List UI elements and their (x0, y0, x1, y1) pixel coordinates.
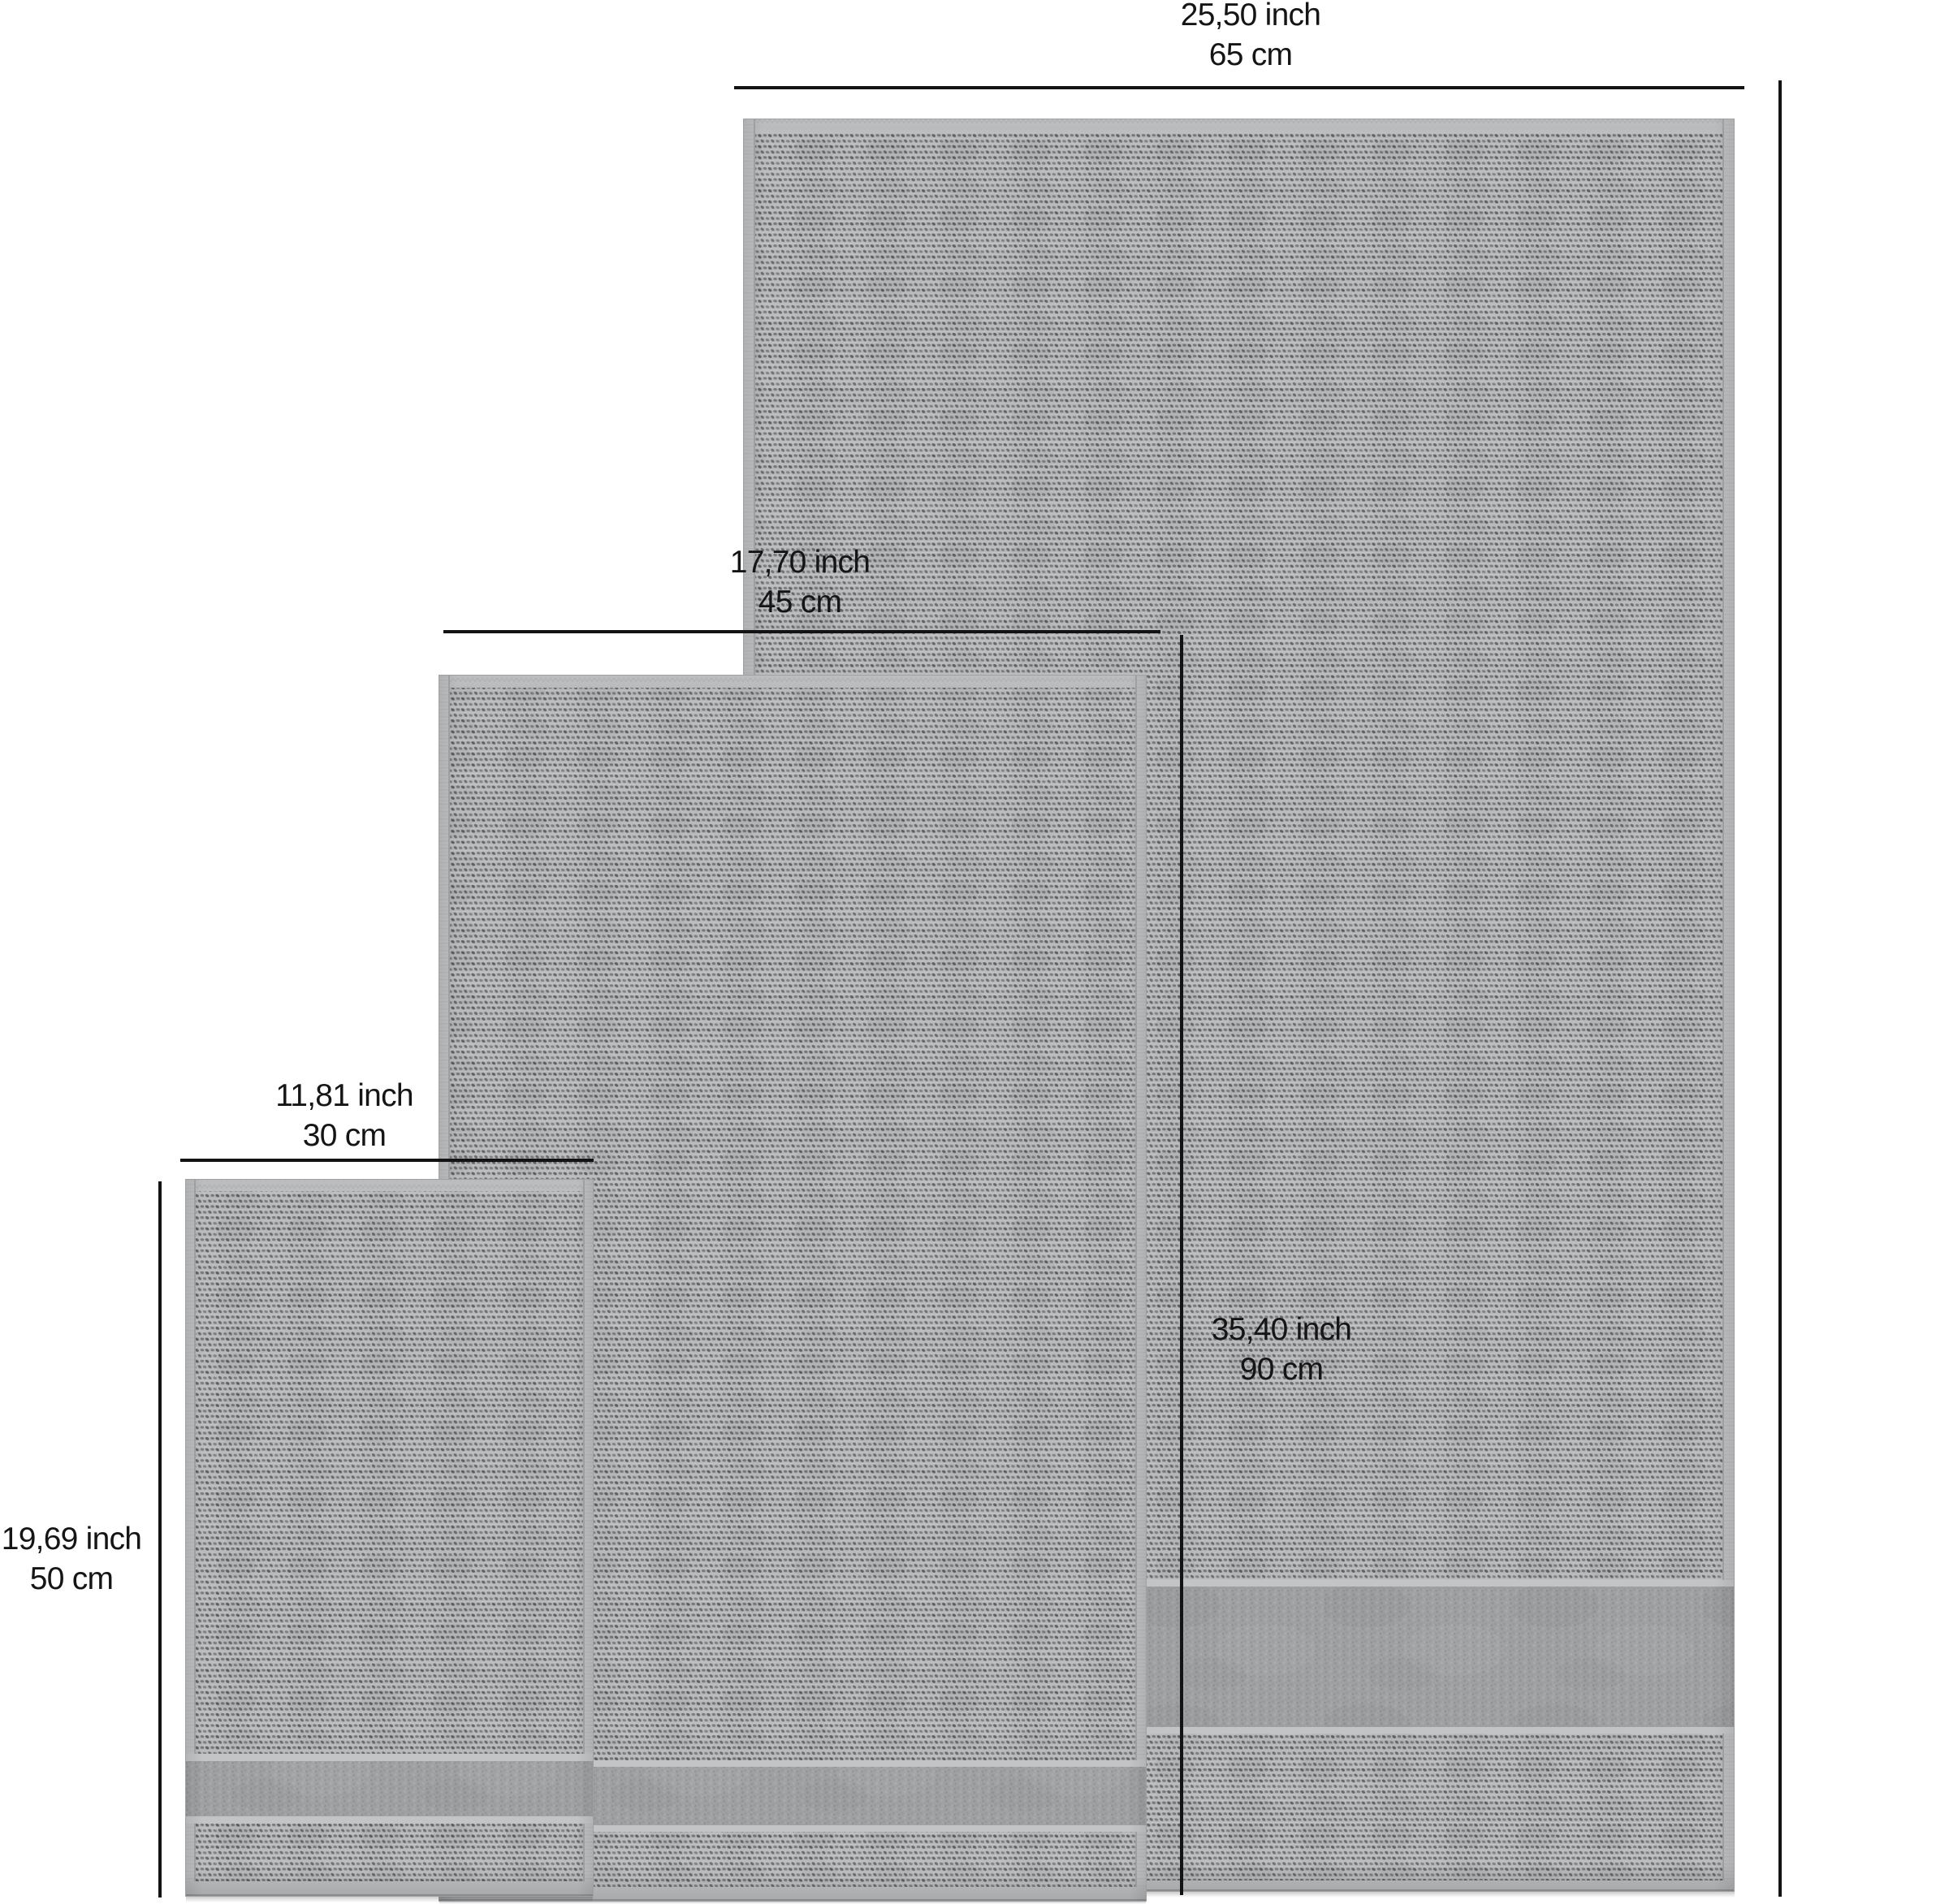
svg-text:30 cm: 30 cm (303, 1118, 386, 1153)
svg-text:17,70 inch: 17,70 inch (730, 545, 870, 580)
svg-text:11,81 inch: 11,81 inch (275, 1078, 413, 1113)
svg-text:90 cm: 90 cm (1240, 1352, 1323, 1387)
svg-text:25,50 inch: 25,50 inch (1181, 0, 1320, 32)
svg-text:65 cm: 65 cm (1209, 37, 1292, 72)
svg-text:19,69 inch: 19,69 inch (2, 1522, 141, 1556)
svg-text:50 cm: 50 cm (30, 1561, 113, 1596)
svg-text:45 cm: 45 cm (758, 585, 841, 620)
svg-text:35,40 inch: 35,40 inch (1212, 1312, 1351, 1347)
